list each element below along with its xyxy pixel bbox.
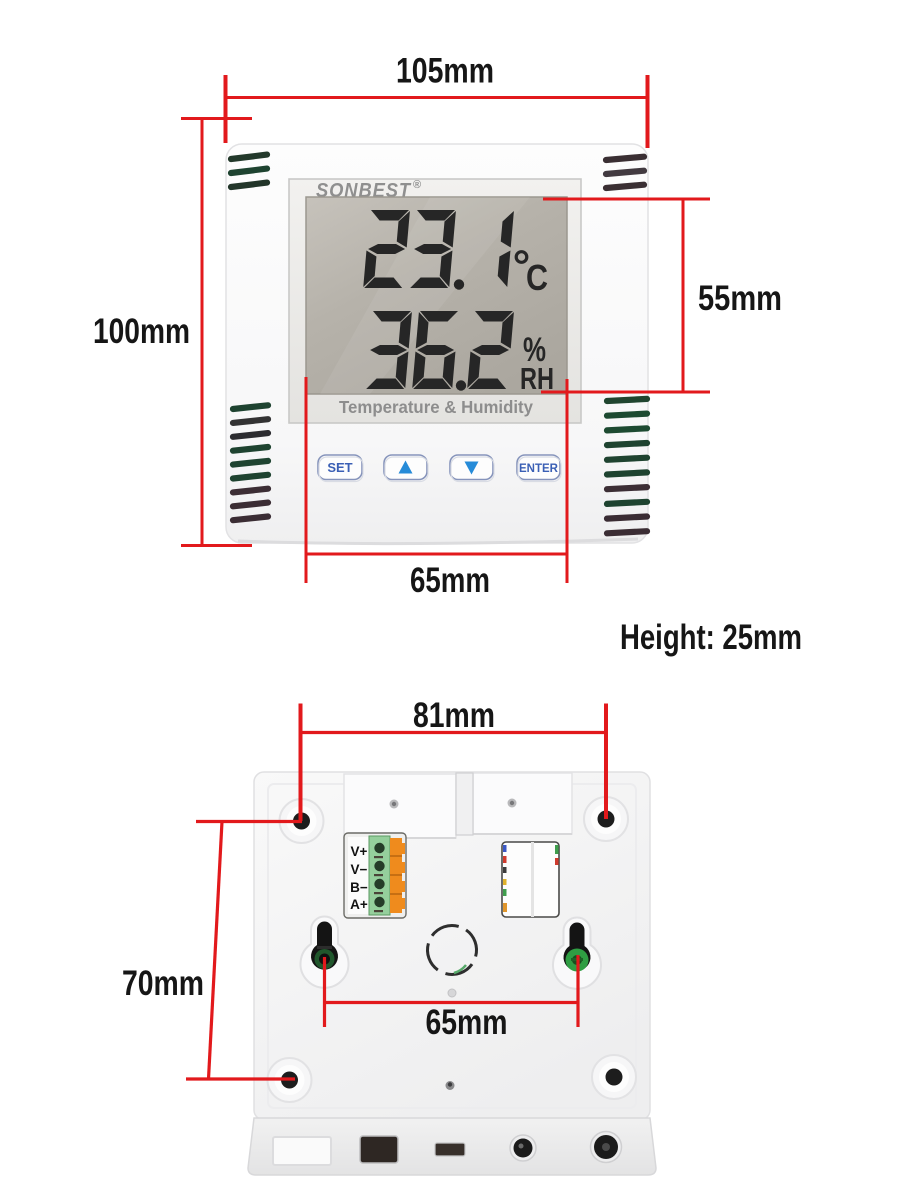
svg-text:®: ®: [413, 179, 421, 191]
svg-text:SET: SET: [327, 460, 352, 475]
svg-text:V−: V−: [351, 862, 368, 877]
svg-text:ENTER: ENTER: [519, 463, 559, 475]
svg-text:55mm: 55mm: [698, 279, 782, 318]
svg-text:65mm: 65mm: [426, 1003, 508, 1042]
svg-text:105mm: 105mm: [396, 52, 494, 91]
svg-text:65mm: 65mm: [410, 561, 490, 600]
svg-text:A+: A+: [350, 897, 368, 912]
svg-text:Height: 25mm: Height: 25mm: [620, 618, 802, 657]
svg-text:Temperature & Humidity: Temperature & Humidity: [339, 397, 533, 417]
svg-text:B−: B−: [350, 880, 368, 895]
svg-text:81mm: 81mm: [413, 696, 495, 735]
svg-text:70mm: 70mm: [122, 964, 204, 1003]
svg-text:V+: V+: [351, 844, 368, 859]
svg-text:C: C: [526, 257, 548, 298]
svg-text:100mm: 100mm: [93, 312, 190, 351]
